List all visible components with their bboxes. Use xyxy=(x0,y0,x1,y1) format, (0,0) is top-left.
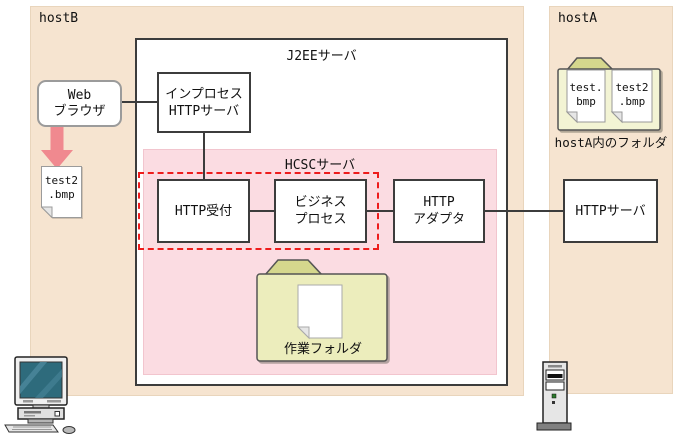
host-b-label: hostB xyxy=(39,11,78,26)
connector-inprocess-to-reception xyxy=(203,131,205,181)
desktop-computer-icon xyxy=(3,356,79,434)
hcsc-server-title: HCSCサーバ xyxy=(144,150,496,173)
web-browser-label-line1: Web xyxy=(68,88,91,104)
http-reception-node: HTTP受付 xyxy=(157,179,250,243)
download-arrow-icon xyxy=(41,126,73,170)
hosta-file2-name: test2 .bmp xyxy=(612,81,652,109)
business-process-node: ビジネス プロセス xyxy=(274,179,367,243)
connector-process-to-adapter xyxy=(365,210,395,212)
inprocess-http-server-node: インプロセス HTTPサーバ xyxy=(157,72,251,133)
architecture-diagram: hostB hostA J2EEサーバ HCSCサーバ Web ブラウザ tes… xyxy=(0,0,677,435)
http-server-node: HTTPサーバ xyxy=(563,179,658,243)
web-browser-label-line2: ブラウザ xyxy=(53,104,105,120)
work-folder-label: 作業フォルダ xyxy=(255,338,391,357)
web-browser-node: Web ブラウザ xyxy=(37,80,122,127)
server-tower-icon xyxy=(534,360,574,432)
connector-adapter-to-httpserver xyxy=(483,210,565,212)
hosta-folder: test. bmp test2 .bmp xyxy=(556,56,664,132)
host-a-label: hostA xyxy=(558,11,597,26)
hosta-folder-caption: hostA内のフォルダ xyxy=(547,132,675,151)
http-adapter-node: HTTP アダプタ xyxy=(393,179,485,243)
connector-browser-to-inprocess xyxy=(120,101,159,103)
hosta-file1-name: test. bmp xyxy=(567,81,605,109)
downloaded-file-name: test2 .bmp xyxy=(41,174,82,202)
work-folder: 作業フォルダ xyxy=(255,258,391,364)
connector-reception-to-process xyxy=(248,210,276,212)
j2ee-server-title: J2EEサーバ xyxy=(137,40,506,64)
